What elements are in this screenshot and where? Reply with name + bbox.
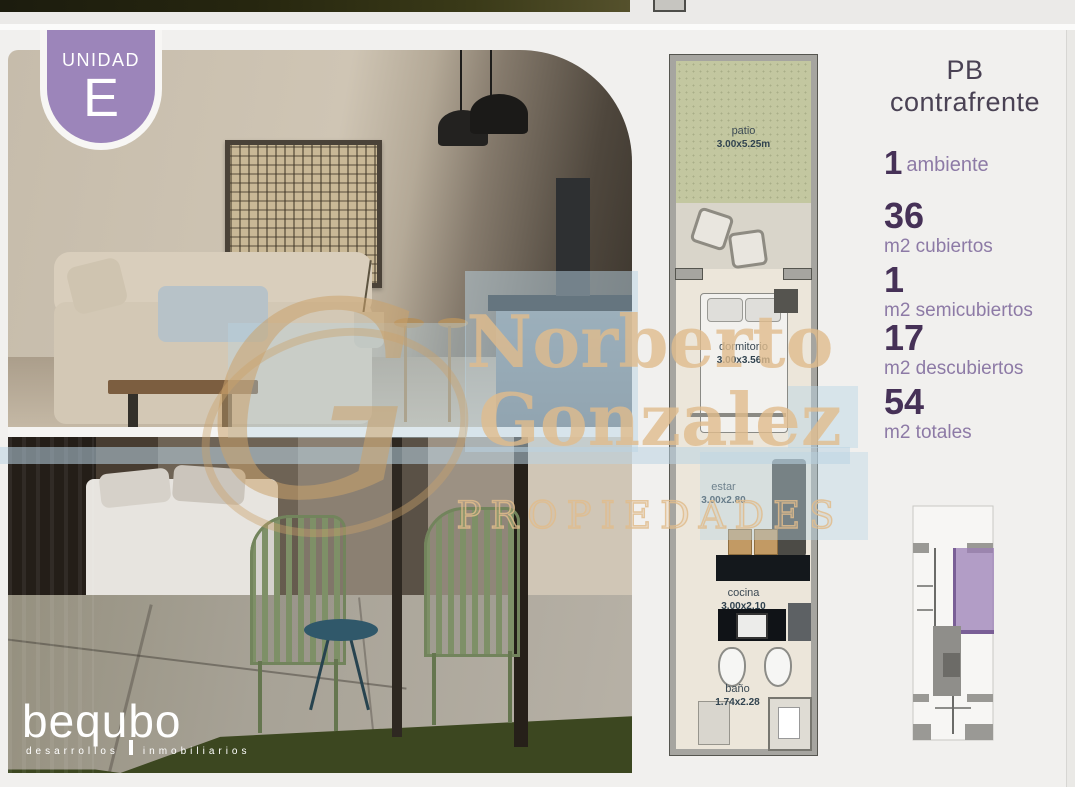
building-key-plan xyxy=(905,498,1010,748)
floorplan-wall xyxy=(676,269,702,279)
chair-leg xyxy=(258,661,262,733)
room-label-dormitorio: dormitorio 3.00x3.56m xyxy=(676,341,811,367)
bar-stool xyxy=(438,318,468,328)
floorplan-bidet xyxy=(718,647,746,687)
lamp-cord xyxy=(460,50,462,112)
floorplan-interior xyxy=(676,61,811,749)
stat-m2-descubiertos: 17 m2 descubiertos xyxy=(884,320,1023,380)
floor-title-line2: contrafrente xyxy=(870,87,1060,119)
room-label-estar: estar 3.00x2.80 xyxy=(656,481,791,507)
floorplan-counter xyxy=(716,555,810,581)
logo-tagline-left: desarrollos xyxy=(26,746,119,757)
coffee-table xyxy=(108,380,258,394)
previous-page-plan-remnant xyxy=(653,0,686,12)
developer-logo: bequbo desarrollos inmobiliarios xyxy=(22,698,251,757)
logo-divider-bar xyxy=(129,740,133,755)
floor-title-line1: PB xyxy=(870,55,1060,87)
chair-leg xyxy=(508,651,512,723)
stat-ambiente: 1 ambiente xyxy=(884,146,989,179)
chair-leg xyxy=(334,659,338,731)
room-label-bano: baño 1.74x2.28 xyxy=(670,683,805,709)
table-leg xyxy=(222,394,232,427)
bar-stool xyxy=(394,318,424,328)
photo-divider xyxy=(8,427,632,437)
unit-badge-letter: E xyxy=(47,71,155,125)
unit-badge: UNIDAD E xyxy=(40,30,162,150)
key-plan-drawing xyxy=(905,498,1010,748)
previous-page-strip xyxy=(0,0,1075,30)
bed-pillow xyxy=(98,467,171,508)
floorplan-stool xyxy=(754,529,778,555)
page-right-margin xyxy=(1067,30,1075,787)
door-frame xyxy=(392,437,402,737)
previous-page-photo-remnant xyxy=(0,0,630,12)
kitchen-counter xyxy=(488,295,632,311)
floor-title: PB contrafrente xyxy=(870,55,1060,119)
logo-wordmark: bequbo xyxy=(22,698,251,744)
pendant-lamp xyxy=(470,94,528,134)
bar-stool-leg xyxy=(448,326,451,422)
floorplan-sink xyxy=(736,613,768,639)
floorplan-dresser xyxy=(690,413,786,417)
floorplan-stool xyxy=(728,529,752,555)
bed-pillow xyxy=(172,465,246,506)
table-leg xyxy=(128,394,138,427)
outdoor-chair xyxy=(250,515,346,665)
floorplan-nightstand xyxy=(774,289,798,313)
side-table xyxy=(304,619,378,641)
logo-tagline-right: inmobiliarios xyxy=(143,746,251,757)
floorplan-shower-tray xyxy=(778,707,800,739)
stat-m2-semicubiertos: 1 m2 semicubiertos xyxy=(884,262,1033,322)
room-label-cocina: cocina 3.00x2.10 xyxy=(676,587,811,613)
sofa-cushion xyxy=(158,286,268,342)
room-label-patio: patio 3.00x5.25m xyxy=(676,125,811,151)
stat-m2-cubiertos: 36 m2 cubiertos xyxy=(884,198,993,258)
floorplan-bed-pillow xyxy=(707,298,743,322)
lamp-cord xyxy=(490,50,492,96)
floorplan-toilet xyxy=(764,647,792,687)
outdoor-chair xyxy=(424,507,520,657)
stat-m2-totales: 54 m2 totales xyxy=(884,384,972,444)
chair-leg xyxy=(432,653,436,725)
unit-floorplan: patio 3.00x5.25m dormitorio 3.00x3.56m e… xyxy=(670,55,817,755)
floorplan-patio-chair xyxy=(728,229,769,270)
kitchen-cabinets xyxy=(496,311,632,427)
floorplan-wall xyxy=(784,269,811,279)
plant-pot xyxy=(354,312,384,348)
bar-stool-leg xyxy=(404,326,407,422)
fridge xyxy=(556,178,590,296)
